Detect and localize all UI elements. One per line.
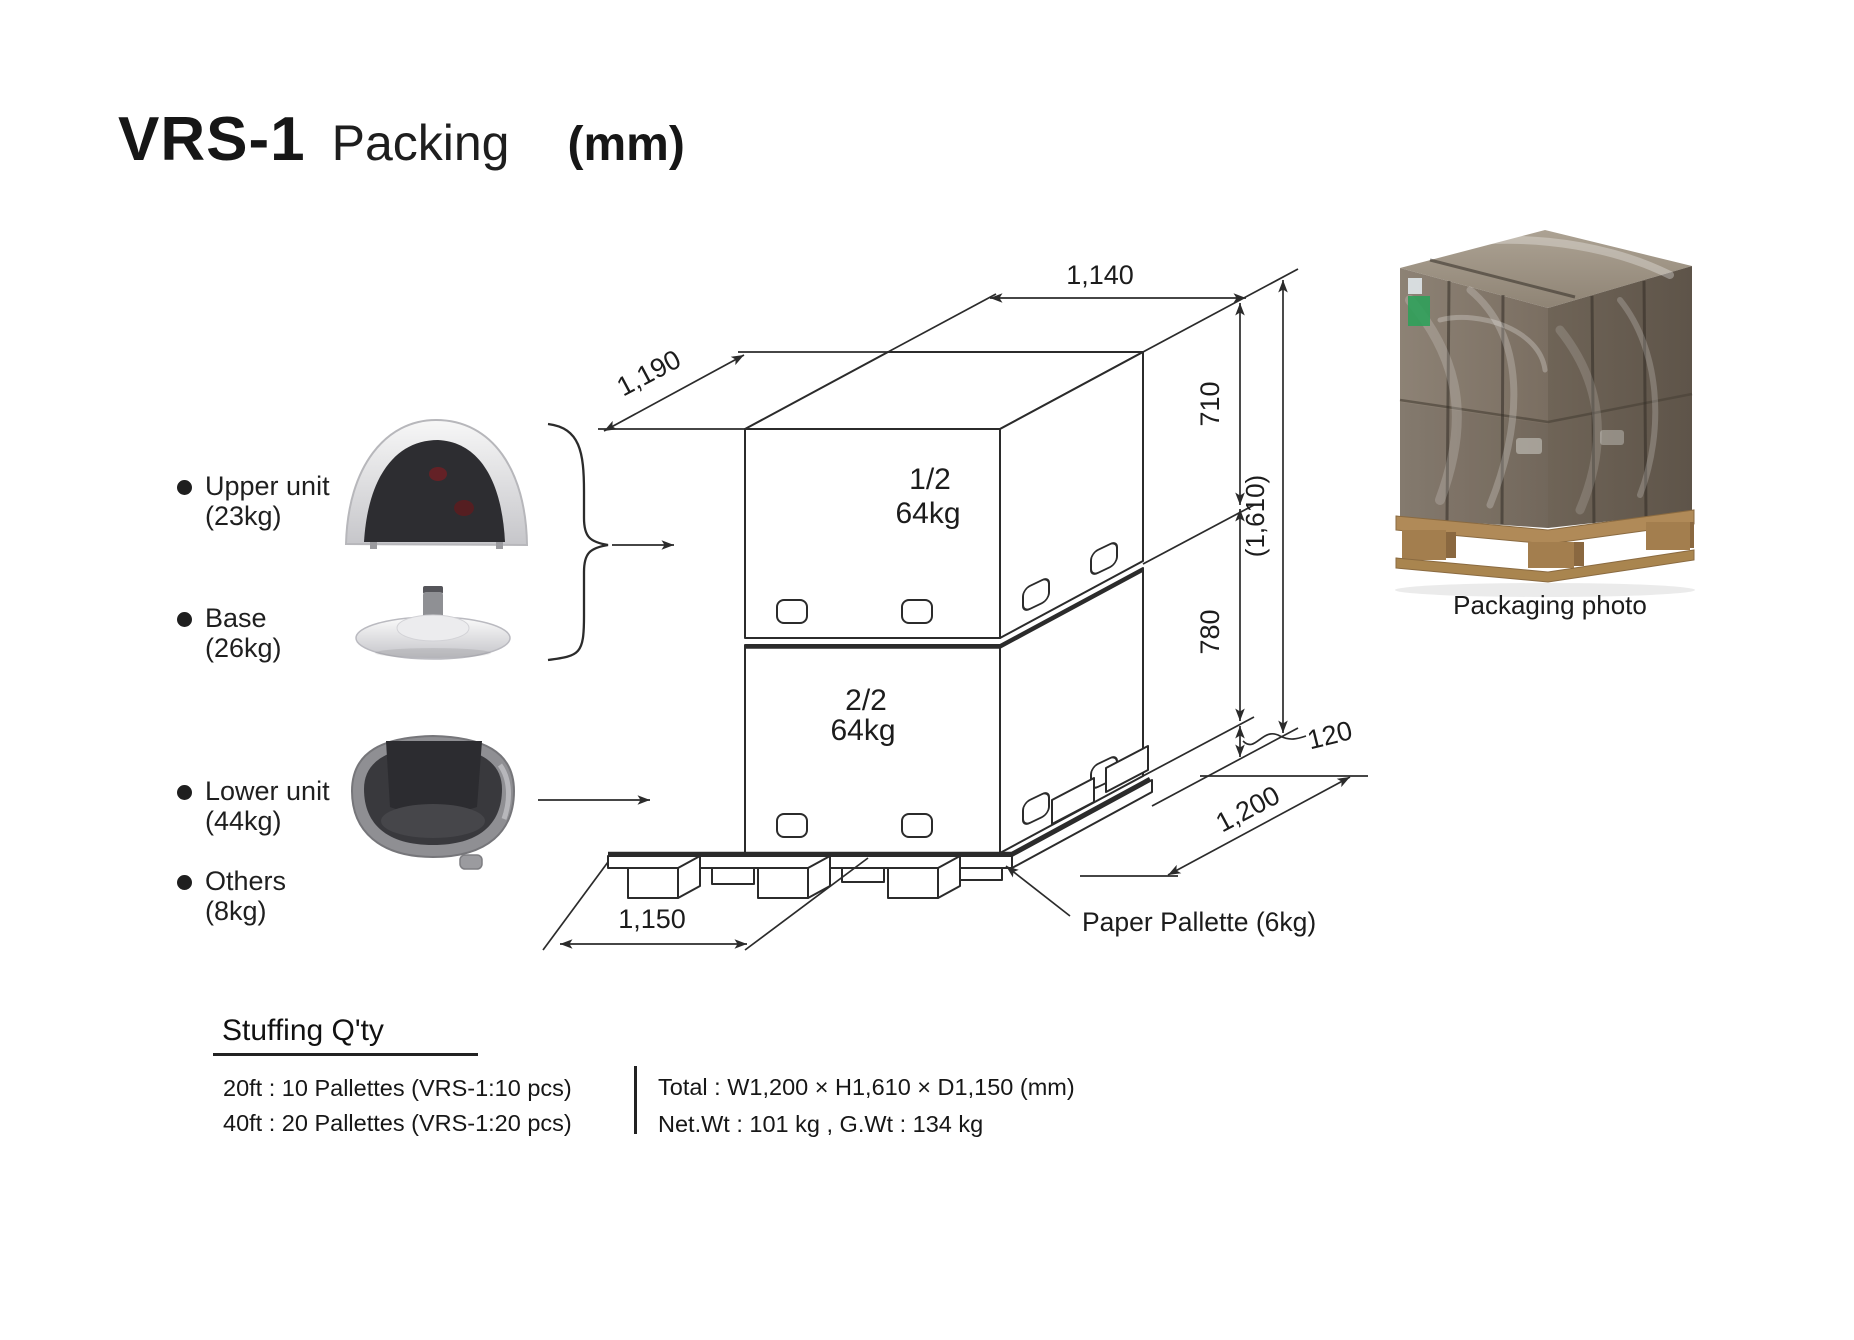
lower-box-weight: 64kg [830, 714, 895, 747]
packing-spec-page: VRS-1Packing(mm) Upper unit (23kg) Base … [0, 0, 1854, 1340]
dim-pallet-depth: 1,200 [1211, 780, 1285, 838]
total-weights: Net.Wt : 101 kg , G.Wt : 134 kg [658, 1106, 1075, 1143]
upper-unit-image [346, 420, 527, 549]
photo-caption: Packaging photo [1385, 590, 1715, 621]
heading-underline [213, 1053, 478, 1056]
handle-cutout [902, 814, 932, 837]
grouping-brace [548, 424, 608, 660]
dim-upper-height: 710 [1195, 381, 1225, 426]
total-dimensions: Total : W1,200 × H1,610 × D1,150 (mm) [658, 1069, 1075, 1106]
lower-unit-image [352, 736, 514, 869]
packaging-photo [1395, 230, 1695, 597]
vertical-divider [634, 1066, 637, 1134]
stuffing-heading: Stuffing Q'ty [222, 1014, 384, 1048]
dim-total-height: (1,610) [1240, 475, 1270, 557]
dim-lower-height: 780 [1195, 609, 1225, 654]
stuffing-row-40ft: 40ft : 20 Pallettes (VRS-1:20 pcs) [223, 1106, 572, 1141]
lower-box-seq: 2/2 [845, 684, 887, 717]
base-image [356, 586, 510, 659]
handle-cutout [902, 600, 932, 623]
stacked-boxes-drawing [745, 352, 1143, 853]
stuffing-row-20ft: 20ft : 10 Pallettes (VRS-1:10 pcs) [223, 1071, 572, 1106]
upper-box-weight: 64kg [895, 497, 960, 530]
handle-cutout [777, 600, 807, 623]
dim-top-width: 1,140 [1066, 260, 1134, 290]
dim-pallet-width: 1,150 [618, 904, 686, 934]
stuffing-rows: 20ft : 10 Pallettes (VRS-1:10 pcs) 40ft … [223, 1071, 572, 1141]
upper-box-seq: 1/2 [909, 463, 951, 496]
stuffing-totals: Total : W1,200 × H1,610 × D1,150 (mm) Ne… [658, 1069, 1075, 1143]
handle-cutout [777, 814, 807, 837]
dim-pallet-height: 120 [1304, 715, 1355, 755]
pallet-callout-label: Paper Pallette (6kg) [1082, 907, 1316, 937]
